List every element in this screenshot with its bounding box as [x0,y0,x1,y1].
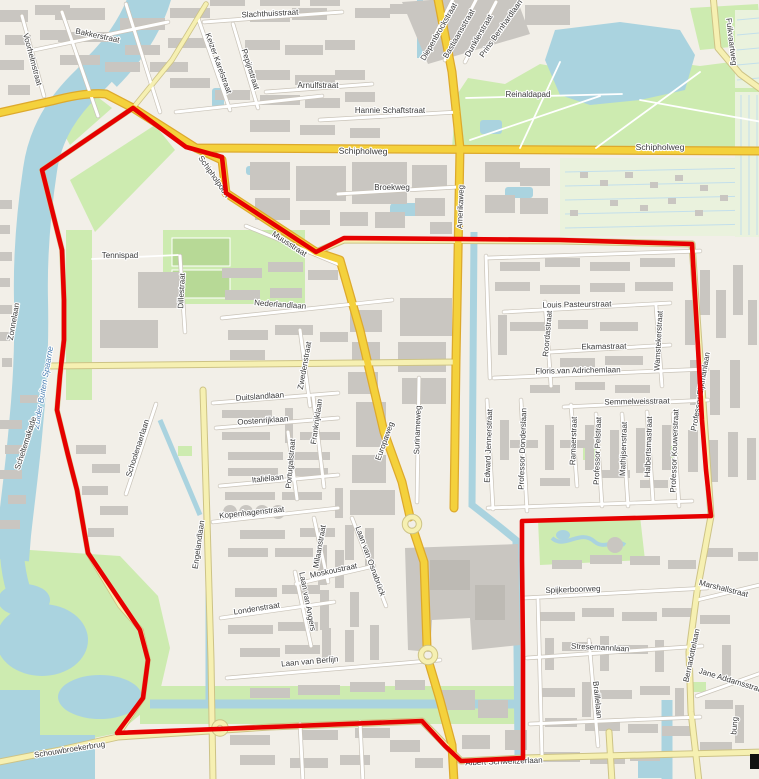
street-label: Dillestraat [176,272,187,309]
street-label: Reinaldapad [506,90,551,99]
street-label: Amerikaweg [455,185,466,229]
street-label: Mathijsenstraat [618,421,629,476]
street-label: Schipholweg [636,142,685,152]
street-label: Ramaerstraat [568,416,579,466]
street-label: Tennispad [102,251,138,260]
street-label: Louis Pasteurstraat [542,299,612,309]
render-artifacts [750,754,759,769]
street-label: Surinameweg [412,405,423,454]
street-label: Hannie Schaftstraat [355,106,426,115]
street-label: Floris van Adrichemlaan [535,365,621,375]
map-canvas[interactable]: BakkerstraatVoorhelmstraatSlachthuisstra… [0,0,759,779]
map-svg: BakkerstraatVoorhelmstraatSlachthuisstra… [0,0,759,779]
street-label: Schipholweg [339,146,388,157]
street-label: Arnulfstraat [298,81,340,90]
street-label: Spijkerboorweg [545,584,600,595]
street-label: Semmelweisstraat [604,396,670,406]
street-label: Ekamastraat [581,342,627,352]
tile-artifact [750,754,759,769]
street-label: Broekweg [374,183,410,192]
street-label: bung [729,717,740,736]
